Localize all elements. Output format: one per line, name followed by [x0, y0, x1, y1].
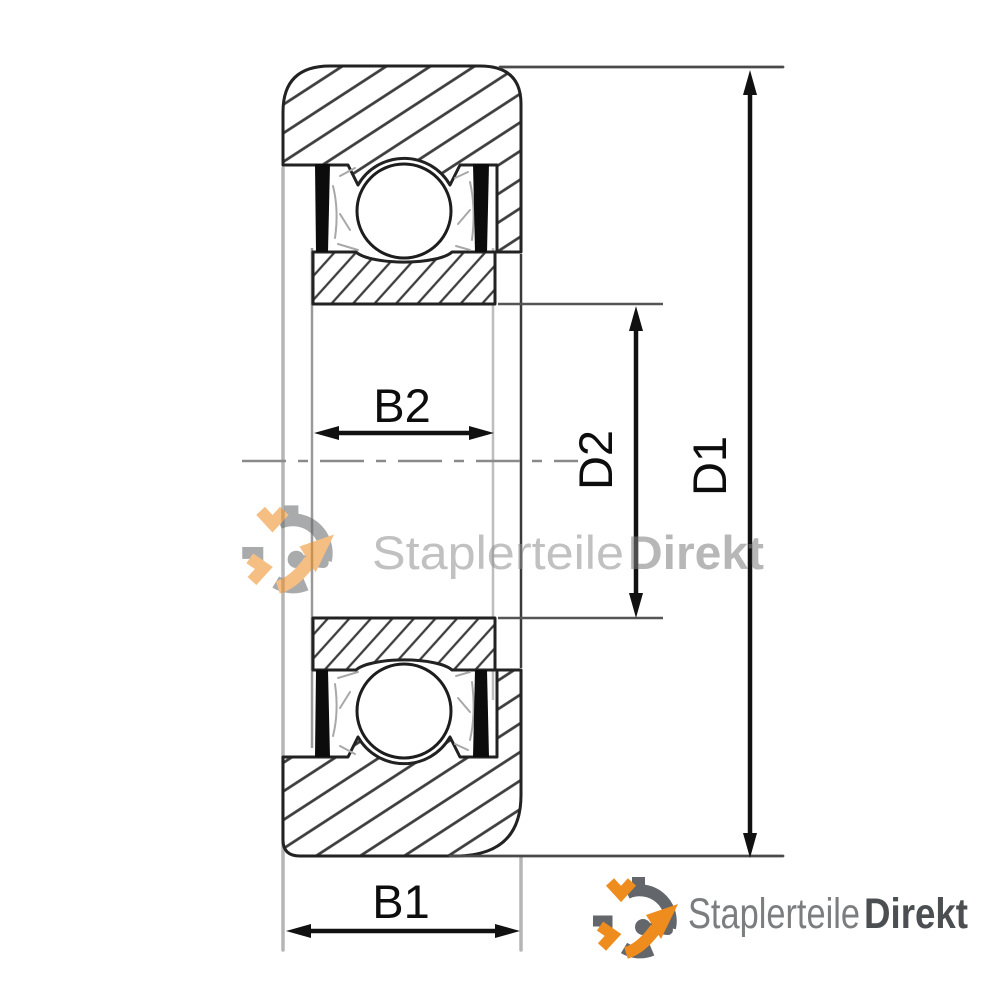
watermark-logo-icon	[242, 505, 334, 587]
seal-bottom-right	[473, 670, 489, 757]
watermark-brand-regular: Staplerteile	[372, 526, 624, 579]
dim-b1-arrowhead-right	[495, 924, 520, 938]
ball-bottom	[357, 664, 451, 758]
dim-b1-arrowhead-left	[286, 924, 311, 938]
page: B2 B1 D2 D1 Staplerteile Direkt Staplert…	[0, 0, 1000, 1000]
dimension-b2: B2	[314, 379, 494, 440]
dim-b2-label: B2	[373, 379, 431, 432]
watermark-brand-bold: Direkt	[628, 526, 764, 579]
dim-d1-arrowhead-top	[743, 70, 757, 95]
ball-top	[357, 164, 451, 258]
dim-b2-arrowhead-left	[314, 426, 339, 440]
brand-logo-text: Staplerteile Direkt	[688, 890, 968, 938]
inner-ring-bottom	[313, 618, 495, 670]
dim-d2-label: D2	[569, 430, 622, 490]
logo-brand-regular: Staplerteile	[688, 890, 860, 938]
seal-top-right	[473, 164, 489, 252]
bearing-diagram: B2 B1 D2 D1 Staplerteile Direkt Staplert…	[0, 0, 1000, 1000]
brand-logo: Staplerteile Direkt	[593, 877, 968, 953]
dim-d2-arrowhead-top	[629, 306, 643, 331]
dim-d1-arrowhead-bottom	[743, 833, 757, 858]
dim-d2-arrowhead-bottom	[629, 593, 643, 618]
brand-logo-icon	[593, 877, 678, 953]
dim-b1-label: B1	[372, 875, 430, 928]
watermark-text: Staplerteile Direkt	[372, 526, 764, 579]
inner-ring-top	[313, 252, 495, 304]
dimension-b1: B1	[286, 875, 520, 938]
dimension-d1: D1	[683, 70, 757, 858]
brand-watermark: Staplerteile Direkt	[242, 505, 764, 587]
logo-brand-bold: Direkt	[864, 890, 968, 938]
seal-bottom-left	[315, 670, 330, 757]
dim-d1-label: D1	[683, 436, 736, 496]
dim-b2-arrowhead-right	[469, 426, 494, 440]
seal-top-left	[315, 164, 330, 252]
